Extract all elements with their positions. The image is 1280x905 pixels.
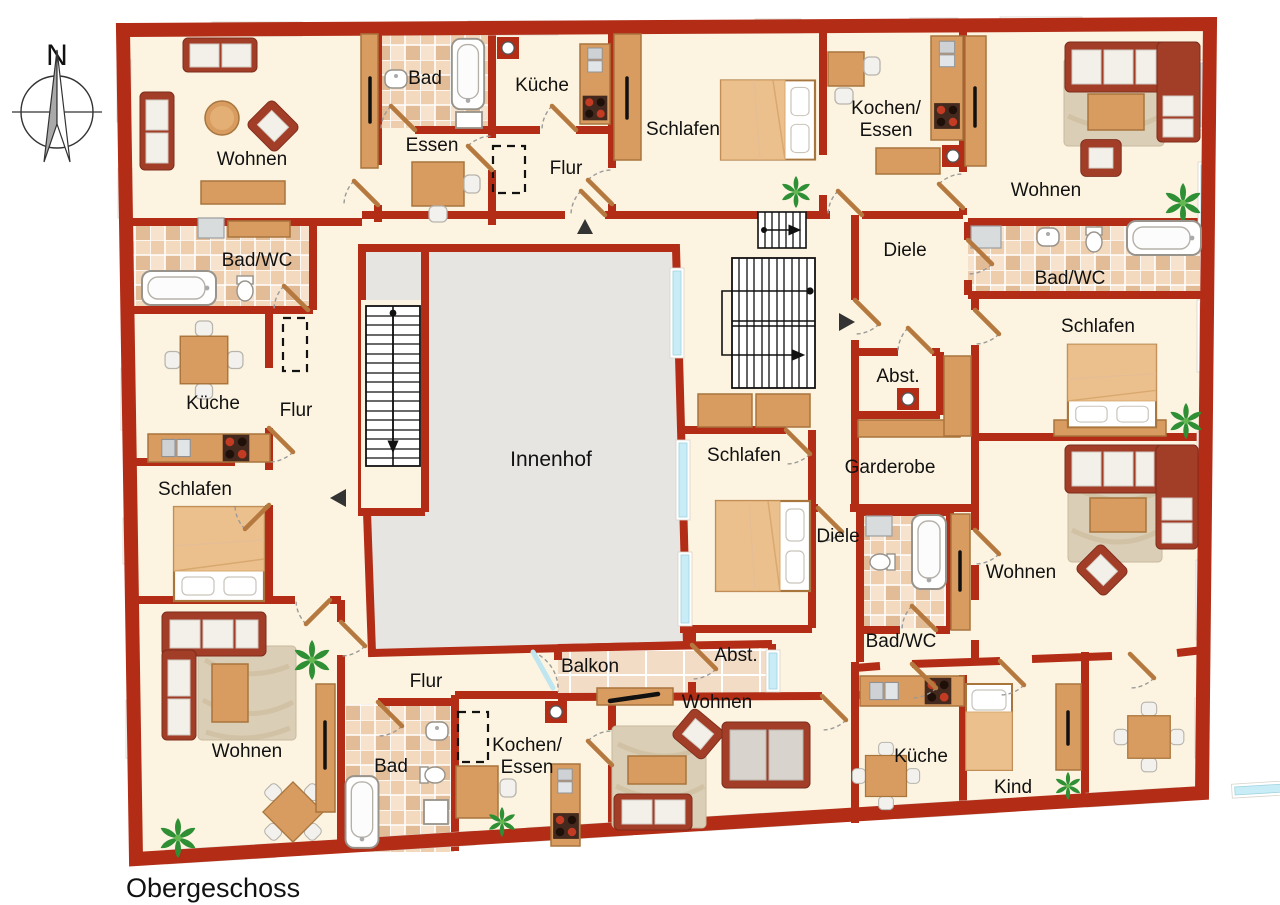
room-label-garderobe: Garderobe — [845, 457, 936, 478]
room-label-kueche-br: Küche — [894, 746, 948, 767]
room-label-kochen-b-1: Kochen/ — [492, 735, 562, 756]
window-icon — [766, 650, 780, 692]
window-icon — [1231, 780, 1280, 798]
room-label-abst-b: Abst. — [714, 645, 757, 666]
room-label-kind: Kind — [994, 777, 1032, 798]
room-label-flur-b: Flur — [410, 671, 443, 692]
room-label-schlafen-l: Schlafen — [158, 479, 232, 500]
room-label-essen-top: Essen — [406, 135, 459, 156]
compass-icon: N — [12, 39, 102, 162]
room-label-wohnen-tr: Wohnen — [1011, 180, 1081, 201]
room-label-wohnen-br: Wohnen — [986, 562, 1056, 583]
room-label-kueche-l: Küche — [186, 393, 240, 414]
room-label-balkon: Balkon — [561, 656, 619, 677]
floorplan-page: N — [0, 0, 1280, 905]
room-label-diele-b: Diele — [816, 526, 859, 547]
room-label-bad-b: Bad — [374, 756, 408, 777]
courtyard-staircase — [366, 306, 420, 466]
room-label-kochen-b-2: Essen — [501, 757, 554, 778]
floor-title: Obergeschoss — [126, 873, 300, 903]
floorplan-drawing: N — [0, 0, 1280, 905]
room-label-flur-l: Flur — [280, 400, 313, 421]
window-icon — [670, 268, 684, 358]
room-label-abst-c: Abst. — [876, 366, 919, 387]
small-staircase — [758, 212, 806, 248]
room-label-flur-top: Flur — [550, 158, 583, 179]
room-label-kochen-tr-1: Kochen/ — [851, 98, 921, 119]
room-label-badwc-l: Bad/WC — [222, 250, 293, 271]
room-label-diele-tr: Diele — [883, 240, 926, 261]
room-label-badwc-b: Bad/WC — [866, 631, 937, 652]
room-label-wohnen-tl: Wohnen — [217, 149, 287, 170]
main-staircase — [722, 258, 815, 388]
room-label-schlafen-r: Schlafen — [1061, 316, 1135, 337]
room-label-schlafen-c: Schlafen — [707, 445, 781, 466]
room-label-kochen-tr-2: Essen — [860, 120, 913, 141]
furniture-kueche-top — [580, 44, 610, 124]
room-label-schlafen-top: Schlafen — [646, 119, 720, 140]
room-label-innenhof: Innenhof — [510, 448, 592, 471]
room-label-wohnen-bm: Wohnen — [682, 692, 752, 713]
room-label-kueche-top: Küche — [515, 75, 569, 96]
room-label-wohnen-bl: Wohnen — [212, 741, 282, 762]
window-icon — [678, 552, 692, 626]
room-label-bad-top: Bad — [408, 68, 442, 89]
window-icon — [676, 440, 690, 520]
furniture-schlafen-c — [716, 501, 810, 591]
room-label-badwc-r: Bad/WC — [1035, 268, 1106, 289]
